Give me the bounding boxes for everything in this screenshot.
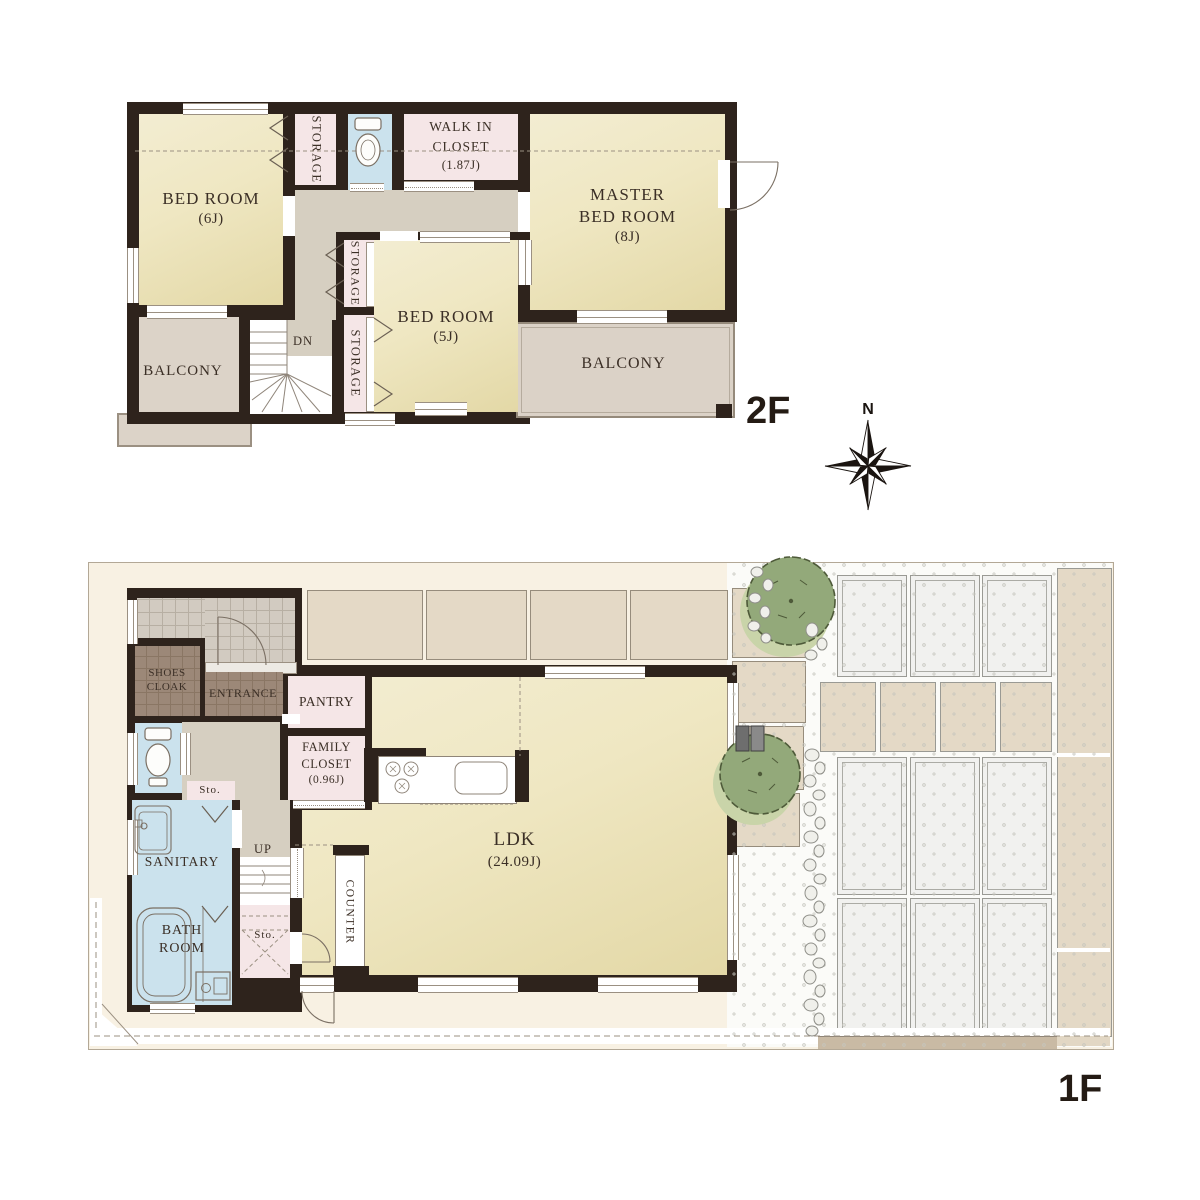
parking-panel — [982, 757, 1052, 895]
floor2-tag: 2F — [746, 390, 790, 433]
toilet-1f-room — [135, 723, 182, 793]
entrance-hall-opening — [282, 714, 300, 724]
entrance-porch — [205, 598, 295, 662]
bathroom-bottom-window — [150, 1003, 195, 1014]
parking-panel — [910, 898, 980, 1037]
parking-panel — [982, 575, 1052, 677]
balcony-right-label: BALCONY — [516, 354, 731, 375]
master-hall-door-opening — [518, 192, 530, 232]
kitchen-counter — [378, 756, 517, 804]
balcony-left-label: BALCONY — [127, 362, 239, 382]
balcony-right-corner-post — [716, 404, 732, 418]
ldk-bottom-window — [598, 977, 698, 993]
ldk-label: LDK (24.09J) — [302, 828, 727, 872]
terrace-paver — [530, 590, 627, 660]
terrace-paver — [307, 590, 423, 660]
toilet-2f-sliding-door — [350, 183, 384, 192]
counter-cap-bottom — [333, 966, 369, 976]
porch-left-window — [127, 600, 138, 644]
walk-in-closet-label: WALK IN CLOSET (1.87J) — [404, 117, 518, 174]
parking-panel — [910, 757, 980, 895]
stairs-1f-room — [240, 857, 290, 905]
east-strip-gap — [1057, 948, 1110, 952]
parking-panel — [982, 898, 1052, 1037]
driveway-strip-light — [1057, 1036, 1110, 1046]
ldk-bottom-window — [418, 977, 518, 993]
bedroom5-door-opening — [380, 231, 418, 241]
toilet-1f-door — [180, 733, 191, 775]
stairs-dn-label: DN — [281, 333, 325, 349]
counter-label: COUNTER — [335, 858, 363, 966]
hall-2f-lower — [295, 232, 336, 320]
toilet-2f-room — [348, 114, 392, 190]
entrance-label: ENTRANCE — [203, 686, 283, 702]
bathroom-label: BATH ROOM — [132, 922, 232, 958]
bedroom6-left-window — [127, 248, 139, 303]
stairs-up-label: UP — [238, 841, 288, 857]
terrace-paver-east — [732, 726, 804, 790]
master-bedroom-label: MASTER BED ROOM (8J) — [530, 184, 725, 248]
bedroom5-bottom-window — [415, 402, 467, 416]
ldk-top-window — [545, 666, 645, 679]
bedroom6-balcony-window — [147, 305, 227, 319]
paver-square — [1000, 682, 1052, 752]
shoes-cloak-label: SHOES CLOAK — [133, 666, 201, 695]
master-balcony-window — [577, 310, 667, 324]
bedroom5-label: BED ROOM (5J) — [374, 306, 518, 348]
floor-plan-page: BED ROOM (6J) STORAGE WALK IN CLOSET (1.… — [0, 0, 1200, 1200]
pantry-label: PANTRY — [288, 693, 365, 711]
wic-sliding-door — [404, 181, 474, 192]
paver-square — [940, 682, 996, 752]
terrace-paver — [630, 590, 728, 660]
stairwell-bottom-window — [345, 413, 395, 426]
sanitary-room — [132, 800, 232, 902]
east-strip-gap — [1057, 753, 1110, 757]
bedroom6-top-window — [183, 103, 268, 115]
storage-small-lower-label: Sto. — [238, 928, 292, 942]
hall-2f-upper — [295, 190, 518, 232]
driveway-strip — [818, 1036, 1057, 1049]
kitchen-wall-right — [515, 750, 529, 802]
terrace-paver — [426, 590, 527, 660]
parking-panel — [910, 575, 980, 677]
storage-mid-label: STORAGE — [340, 240, 370, 307]
ldk-right-window-upper — [727, 683, 739, 755]
storage-top-label: STORAGE — [295, 114, 336, 185]
terrace-paver-east — [732, 793, 800, 847]
room-name: BED ROOM — [139, 188, 283, 210]
storage-low-label: STORAGE — [340, 315, 370, 412]
room-size: (6J) — [139, 210, 283, 230]
paver-square — [820, 682, 876, 752]
ldk-right-window-lower — [727, 855, 739, 960]
boundary-band-left — [90, 898, 102, 1030]
parking-panel — [837, 898, 907, 1037]
floor1-tag: 1F — [1058, 1068, 1102, 1111]
terrace-paver-east — [732, 661, 806, 723]
bedroom6-door-opening — [283, 196, 295, 236]
sanitary-label: SANITARY — [132, 853, 232, 871]
parking-panel — [837, 575, 907, 677]
toilet-left-window — [127, 733, 138, 785]
compass-north-label: N — [862, 401, 874, 418]
compass-icon: N — [825, 401, 911, 510]
family-closet-sliding-door — [293, 800, 365, 809]
ldk-exterior-door-opening — [300, 977, 334, 993]
family-closet-label: FAMILY CLOSET (0.96J) — [288, 739, 365, 788]
terrace-paver-east — [732, 588, 806, 658]
paver-square — [880, 682, 936, 752]
kitchen-wall-left — [364, 756, 378, 802]
parking-panel — [837, 757, 907, 895]
storage-small-upper-label: Sto. — [185, 783, 235, 797]
bedroom5-top-window — [420, 231, 510, 243]
bedroom6-label: BED ROOM (6J) — [139, 188, 283, 230]
east-border-strip — [1057, 568, 1112, 1037]
